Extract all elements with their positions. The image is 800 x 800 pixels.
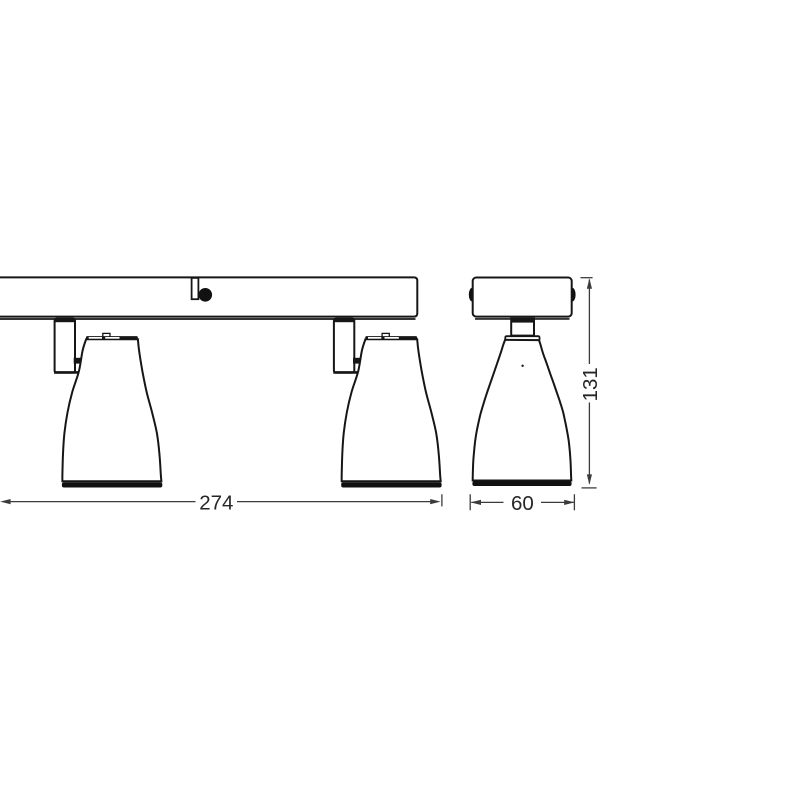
svg-text:274: 274 — [199, 491, 233, 514]
svg-text:60: 60 — [511, 492, 534, 515]
svg-text:131: 131 — [579, 367, 602, 401]
